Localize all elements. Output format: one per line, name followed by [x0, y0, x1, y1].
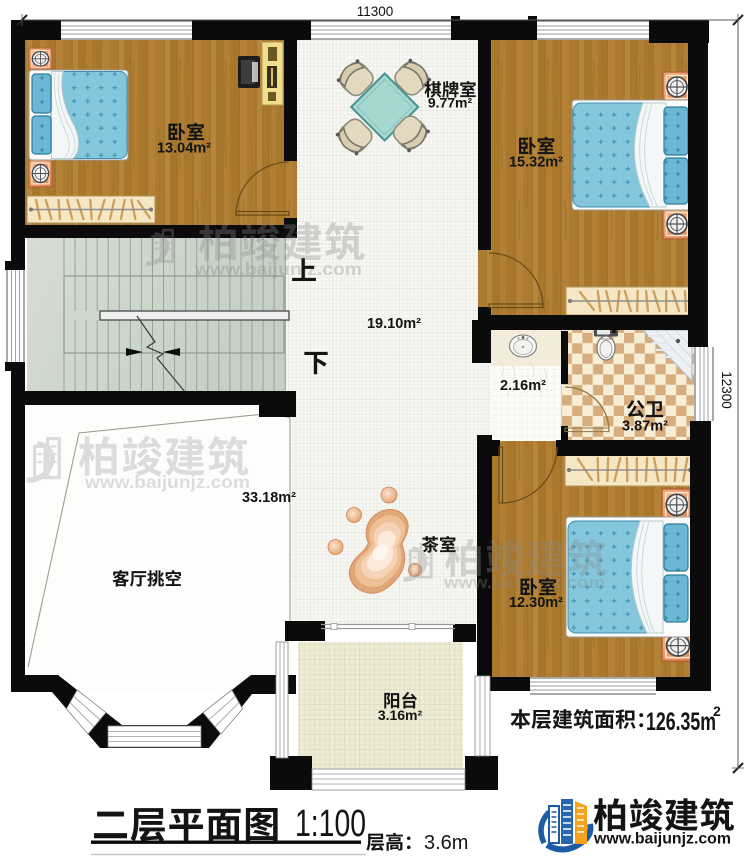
svg-text:www.baijunjz.com: www.baijunjz.com [593, 831, 731, 848]
svg-text:12.30m²: 12.30m² [509, 595, 563, 611]
svg-text:3.87m²: 3.87m² [622, 419, 668, 435]
svg-text:2.16m²: 2.16m² [500, 378, 546, 394]
svg-text:www.baijunjz.com: www.baijunjz.com [84, 472, 250, 492]
svg-text:www.baijunjz.com: www.baijunjz.com [194, 259, 362, 279]
svg-text:12300: 12300 [719, 371, 734, 409]
svg-text:15.32m²: 15.32m² [509, 155, 563, 171]
svg-text:1:100: 1:100 [295, 803, 366, 845]
svg-text:9.77m²: 9.77m² [428, 95, 473, 111]
svg-text:3.6m: 3.6m [424, 832, 468, 854]
svg-text:33.18m²: 33.18m² [242, 490, 296, 506]
svg-text:2: 2 [713, 703, 721, 719]
svg-text:19.10m²: 19.10m² [367, 316, 421, 332]
svg-text:13.04m²: 13.04m² [157, 141, 211, 157]
svg-text:3.16m²: 3.16m² [378, 707, 423, 723]
svg-text:11300: 11300 [357, 4, 394, 19]
svg-text:126.35m: 126.35m [646, 708, 716, 736]
